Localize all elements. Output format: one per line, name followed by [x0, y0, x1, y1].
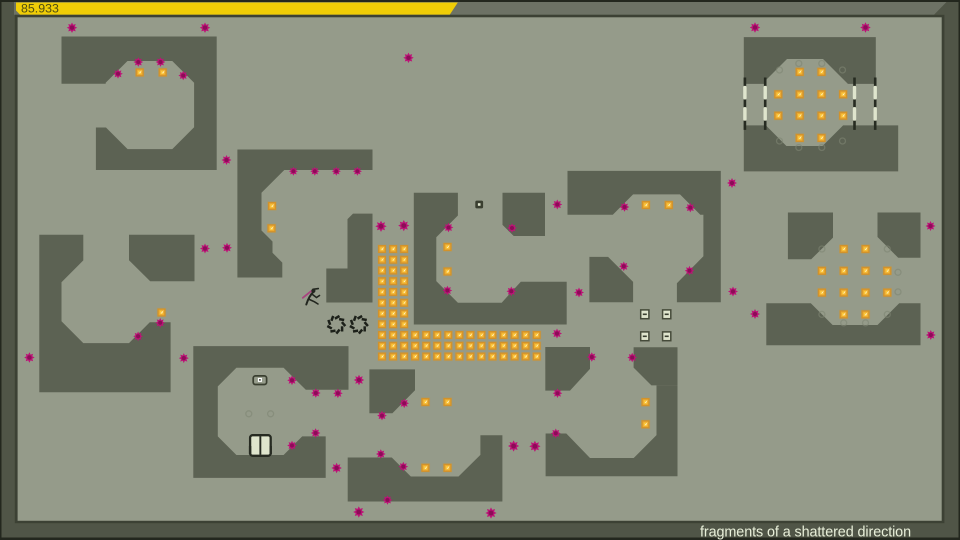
svg-text:fragments of a shattered direc: fragments of a shattered direction [700, 525, 911, 540]
svg-text:85.933: 85.933 [21, 2, 59, 16]
